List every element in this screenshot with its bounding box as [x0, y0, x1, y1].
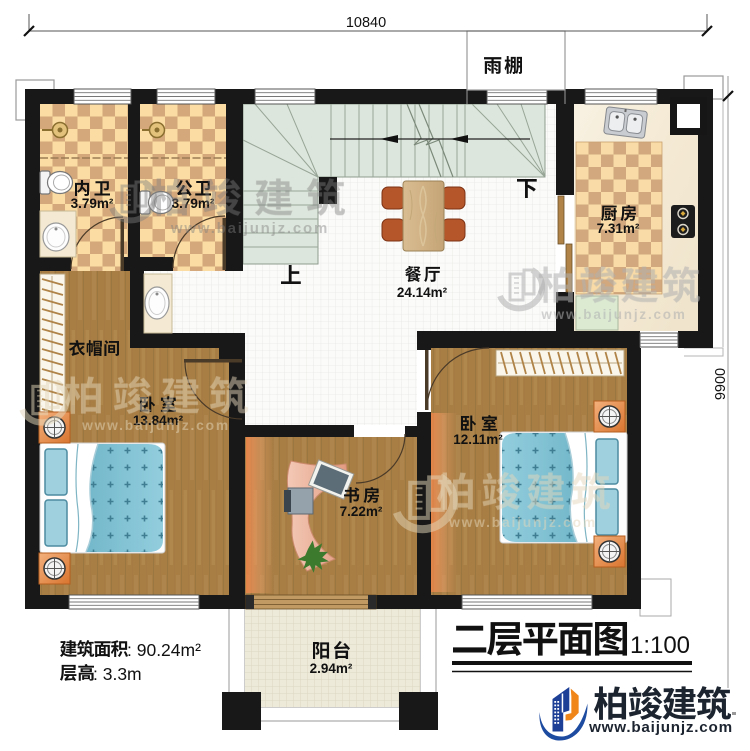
- svg-text:1:100: 1:100: [630, 632, 690, 659]
- svg-text:www.baijunjz.com: www.baijunjz.com: [448, 515, 597, 530]
- svg-text:www.baijunjz.com: www.baijunjz.com: [588, 719, 733, 736]
- svg-text:12.11m²: 12.11m²: [453, 432, 503, 447]
- svg-text:3.79m²: 3.79m²: [71, 196, 114, 211]
- svg-text:www.baijunjz.com: www.baijunjz.com: [81, 418, 230, 433]
- svg-text:www.baijunjz.com: www.baijunjz.com: [540, 307, 686, 322]
- svg-text:www.baijunjz.com: www.baijunjz.com: [170, 220, 329, 237]
- svg-text:9900: 9900: [713, 368, 729, 400]
- svg-text:7.22m²: 7.22m²: [340, 504, 383, 519]
- svg-text:: 3.3m: : 3.3m: [93, 664, 142, 684]
- svg-text:7.31m²: 7.31m²: [597, 221, 640, 236]
- svg-text:10840: 10840: [346, 15, 386, 31]
- svg-text:: 90.24m²: : 90.24m²: [127, 640, 201, 660]
- svg-text:2.94m²: 2.94m²: [310, 661, 353, 676]
- svg-text:24.14m²: 24.14m²: [397, 285, 448, 300]
